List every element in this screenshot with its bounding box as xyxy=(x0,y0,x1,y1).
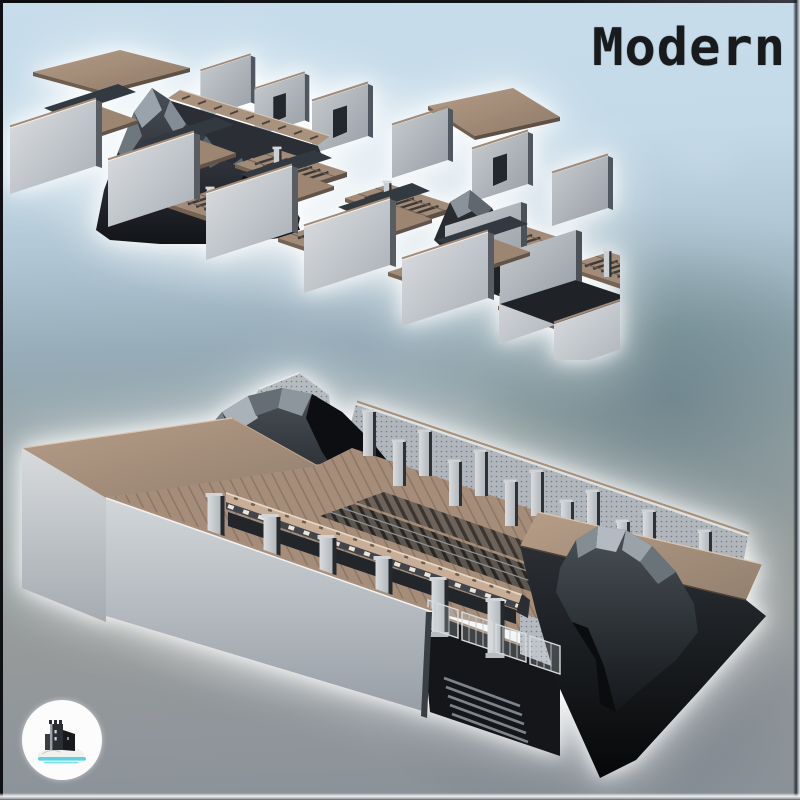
castle-on-hill-icon xyxy=(30,708,94,772)
exploded-view-render xyxy=(0,40,620,360)
product-render-image: { "artwork": { "title": "Modern", "scene… xyxy=(0,0,800,800)
brand-logo xyxy=(22,700,102,780)
assembled-view-render xyxy=(0,360,800,780)
collection-title: Modern xyxy=(592,18,786,78)
